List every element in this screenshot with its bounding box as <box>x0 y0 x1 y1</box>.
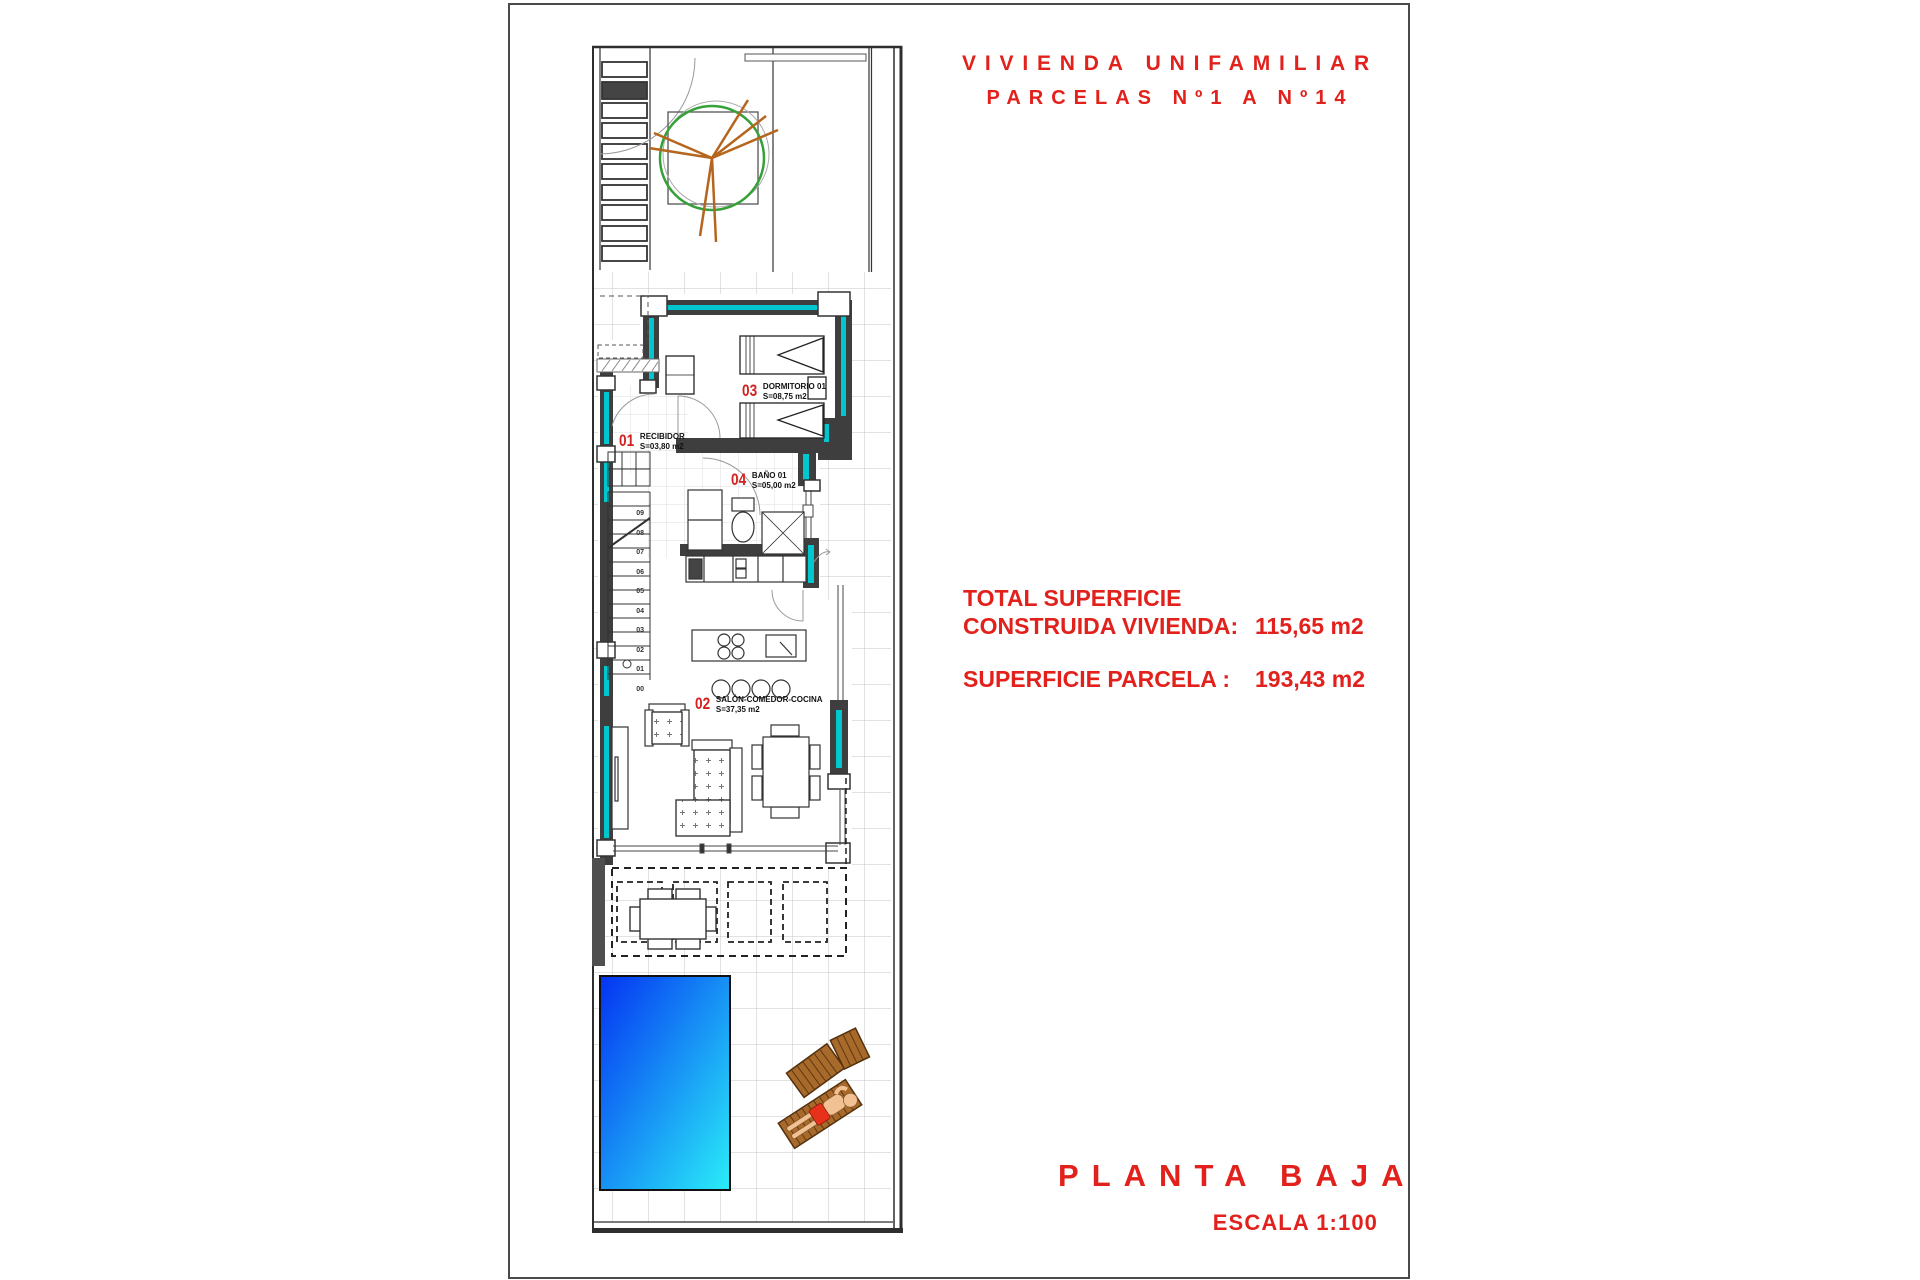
room-name: RECIBIDOR <box>640 432 685 441</box>
room-area: S=05,00 m2 <box>752 481 796 490</box>
room-area: S=37,35 m2 <box>716 705 760 714</box>
porch-hatch <box>597 359 659 372</box>
stair-step-numbers: 09 08 07 06 05 04 03 02 01 00 <box>630 504 644 699</box>
room-label-bano: 04 BAÑO 01 S=05,00 m2 <box>731 471 796 490</box>
room-name: DORMITORIO 01 <box>763 382 826 391</box>
room-number: 01 <box>619 432 634 449</box>
total-superficie-label-2: CONSTRUIDA VIVIENDA: <box>963 613 1238 640</box>
louver-gate <box>602 62 647 261</box>
swimming-pool <box>600 976 730 1190</box>
plan-name: PLANTA BAJA <box>1058 1158 1417 1194</box>
room-label-dormitorio: 03 DORMITORIO 01 S=08,75 m2 <box>742 382 826 401</box>
page: VIVIENDA UNIFAMILIAR PARCELAS Nº1 A Nº14… <box>0 0 1920 1280</box>
room-area: S=03,80 m2 <box>640 442 684 451</box>
title-line-1: VIVIENDA UNIFAMILIAR <box>950 47 1390 81</box>
room-name: BAÑO 01 <box>752 471 787 480</box>
room-name: SALÓN-COMEDOR-COCINA <box>716 695 823 704</box>
plot-area-value: 193,43 m2 <box>1255 666 1365 693</box>
room-number: 03 <box>742 382 757 399</box>
room-label-salon: 02 SALÓN-COMEDOR-COCINA S=37,35 m2 <box>695 695 823 714</box>
room-number: 04 <box>731 471 746 488</box>
room-label-recibidor: 01 RECIBIDOR S=03,80 m2 <box>619 432 685 451</box>
total-superficie-label-1: TOTAL SUPERFICIE <box>963 585 1182 612</box>
floor-plan-drawing <box>0 0 1920 1280</box>
drawing-title: VIVIENDA UNIFAMILIAR PARCELAS Nº1 A Nº14 <box>950 47 1390 115</box>
title-line-2: PARCELAS Nº1 A Nº14 <box>950 81 1390 115</box>
sideboard <box>612 727 628 829</box>
tree <box>649 100 778 242</box>
plan-scale: ESCALA 1:100 <box>1150 1210 1378 1236</box>
room-number: 02 <box>695 695 710 712</box>
plot-area-label: SUPERFICIE PARCELA : <box>963 666 1230 693</box>
pergola-beam <box>745 54 866 61</box>
room-area: S=08,75 m2 <box>763 392 807 401</box>
built-area-value: 115,65 m2 <box>1255 613 1364 640</box>
